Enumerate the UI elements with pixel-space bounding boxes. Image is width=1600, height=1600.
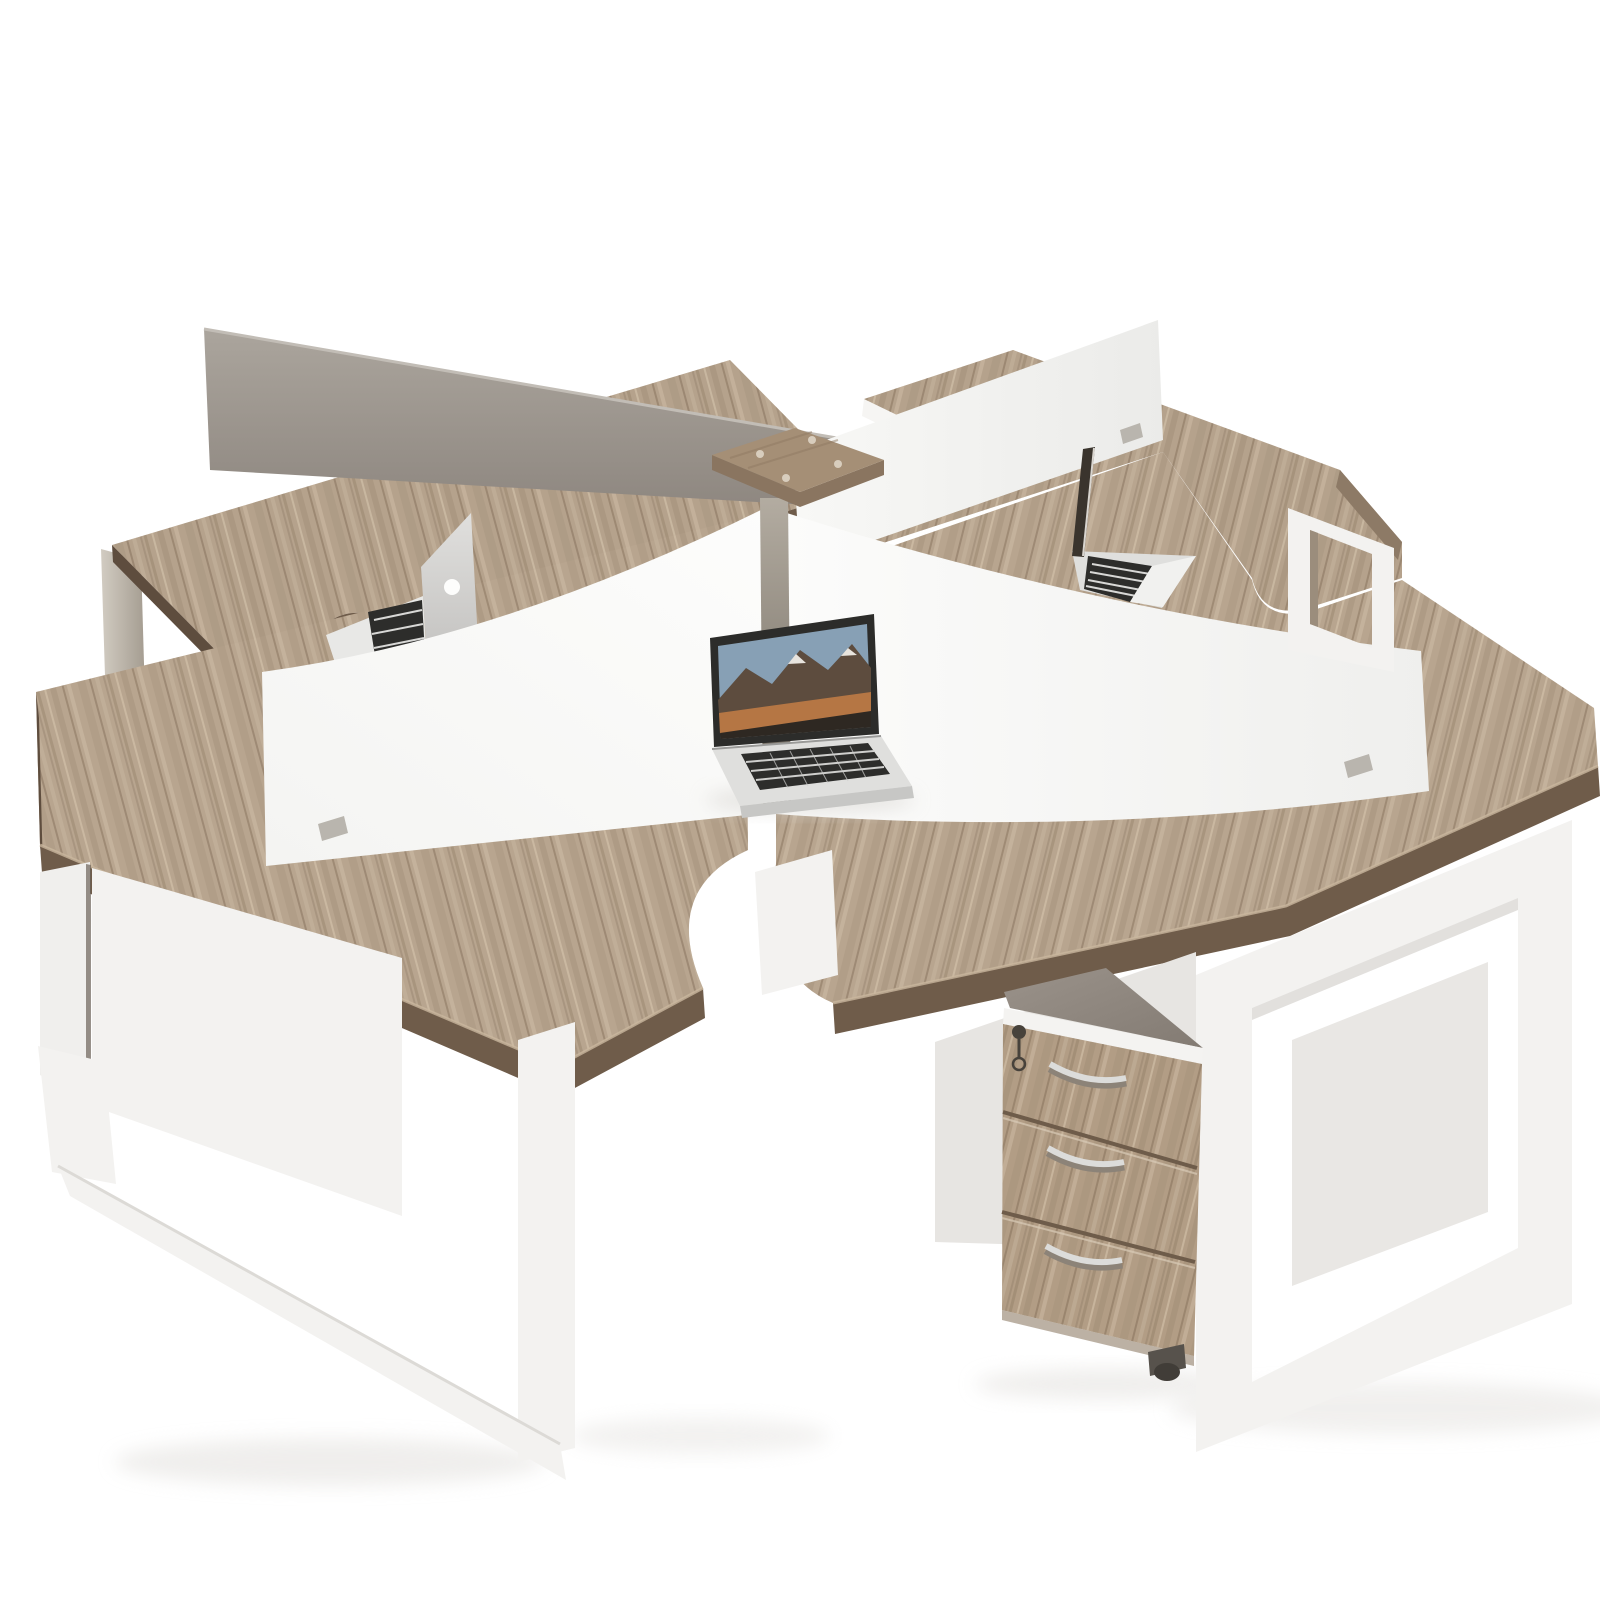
drawer-pedestal bbox=[1002, 968, 1203, 1381]
floor-shadow-center bbox=[570, 1418, 830, 1454]
cap-screw-1 bbox=[756, 450, 764, 458]
cap-screw-2 bbox=[808, 436, 816, 444]
back-right-loop-inner-edge bbox=[1310, 530, 1318, 627]
laptop-logo bbox=[444, 579, 460, 595]
front-left-loop-right-bar bbox=[518, 1022, 575, 1462]
floor-shadow-left bbox=[115, 1438, 545, 1486]
pedestal-lock bbox=[1012, 1025, 1026, 1039]
caster-wheel bbox=[1154, 1363, 1180, 1381]
cap-screw-3 bbox=[834, 460, 842, 468]
cap-screw-4 bbox=[782, 474, 790, 482]
product-photo-stage: 4-person X-shaped office workstation des… bbox=[0, 0, 1600, 1600]
pedestal-front-grain bbox=[1002, 1024, 1202, 1356]
center-leg-post bbox=[755, 850, 838, 995]
workstation-illustration: 4-person X-shaped office workstation des… bbox=[0, 0, 1600, 1600]
